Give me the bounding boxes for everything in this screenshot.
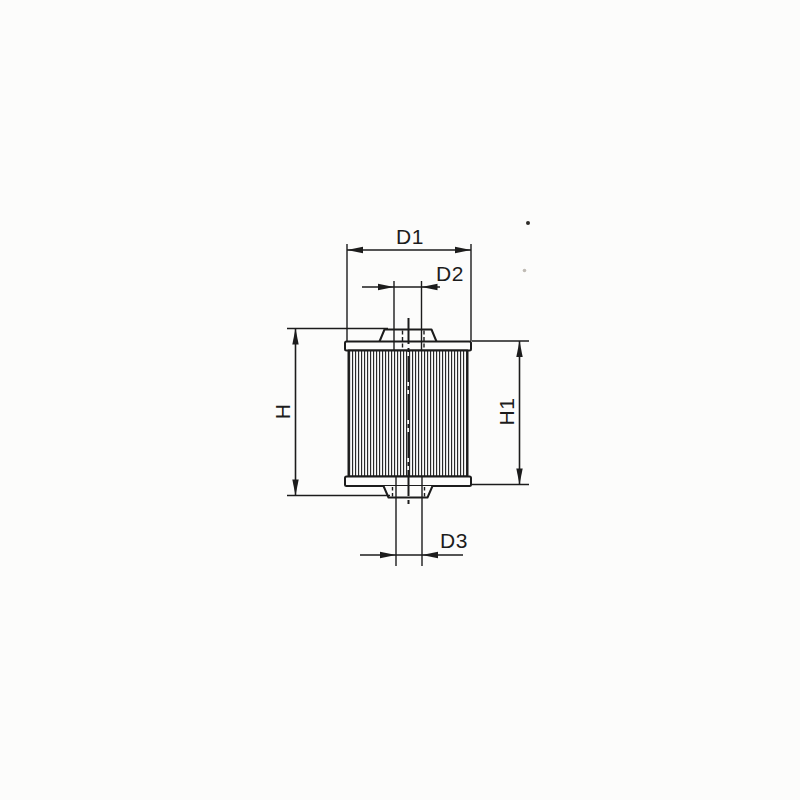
arrowhead-down [516, 469, 522, 485]
technical-drawing-canvas: D1 D2 D3 H H1 [0, 0, 800, 800]
arrowhead-left [422, 552, 438, 558]
dim-label-d3: D3 [432, 530, 476, 551]
scan-speck [523, 269, 527, 273]
dim-label-h1: H1 [496, 390, 517, 434]
arrowhead-right [455, 247, 471, 253]
filter-element-drawing [0, 0, 800, 800]
dim-label-h: H [272, 390, 293, 434]
dim-label-d2: D2 [428, 263, 472, 284]
filter-element [345, 318, 471, 506]
dim-label-d1: D1 [388, 226, 432, 247]
arrowhead-up [292, 329, 298, 345]
scan-speck [526, 221, 530, 225]
arrowhead-right [378, 284, 394, 290]
arrowhead-right [380, 552, 396, 558]
arrowhead-up [516, 341, 522, 357]
arrowhead-down [292, 480, 298, 496]
arrowhead-left [347, 247, 363, 253]
